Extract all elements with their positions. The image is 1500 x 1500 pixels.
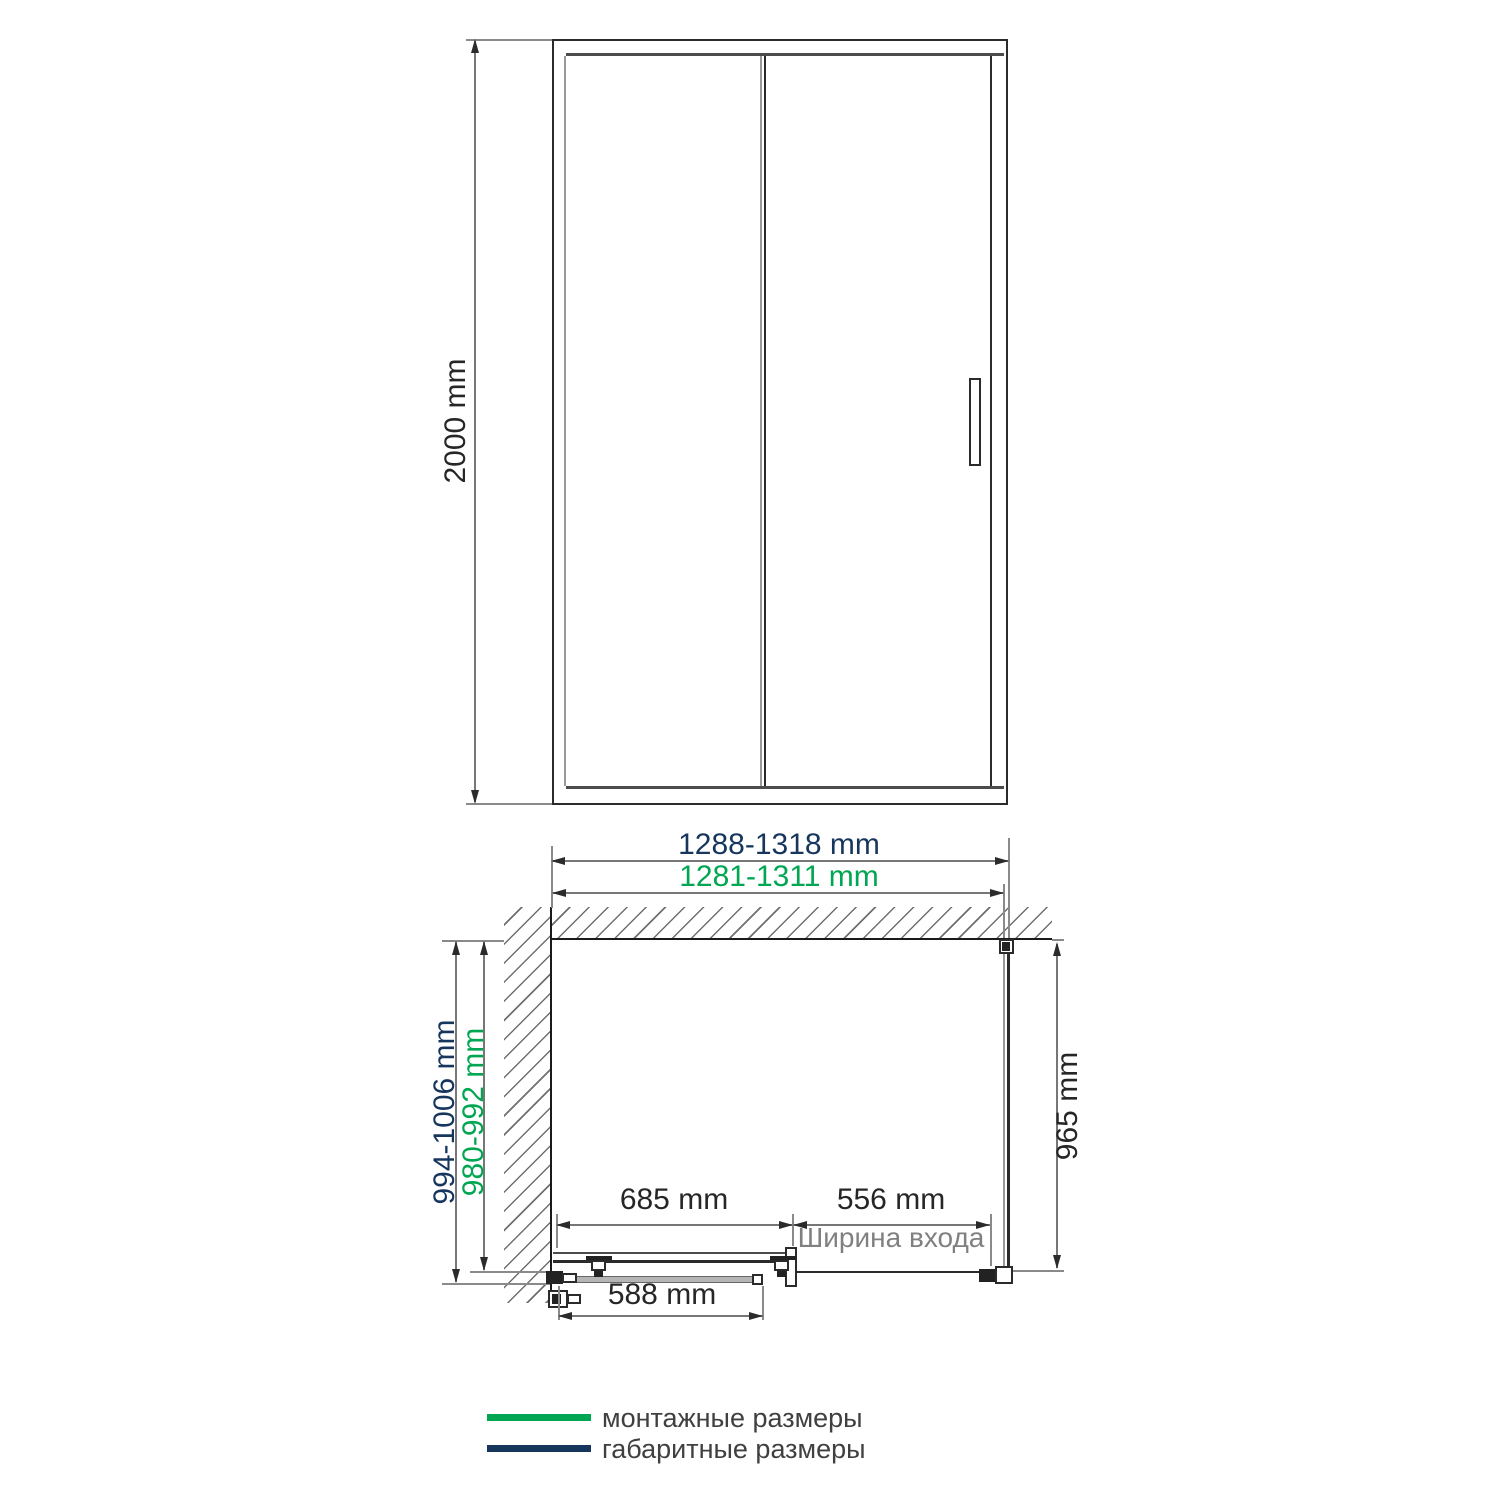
dimension-arrow [471, 790, 479, 804]
door-end-cap [752, 1274, 763, 1285]
legend-mounting-label: монтажные размеры [602, 1405, 863, 1432]
door-handle [969, 378, 981, 466]
extension-line [556, 1214, 558, 1248]
extension-line [1052, 939, 1064, 941]
bottom-rail-line [566, 786, 1004, 789]
side-panel-depth-label: 965 mm [1053, 1052, 1083, 1160]
extension-line [551, 846, 553, 908]
fixed-glass-left-edge [564, 56, 566, 786]
dimension-arrow [779, 1221, 793, 1229]
door-width-label: 588 mm [608, 1280, 716, 1310]
roller-base [777, 1271, 786, 1277]
dimension-arrow [990, 889, 1004, 897]
legend-overall-label: габаритные размеры [602, 1436, 866, 1463]
sliding-door-left-edge [764, 56, 766, 786]
dimension-arrow [558, 1312, 572, 1320]
fixed-panel-line-inner [553, 1252, 791, 1254]
entry-width-caption: Ширина входа [798, 1224, 985, 1252]
dimension-arrow [551, 857, 565, 865]
roller-body [591, 1260, 606, 1271]
dimension-line-door-width [559, 1315, 763, 1317]
extension-line [442, 1283, 550, 1285]
fixed-panel-line-outer [553, 1260, 791, 1263]
dimension-arrow [452, 1269, 460, 1283]
wall-top-hatch [552, 907, 1052, 940]
wall-bracket-arm [562, 1273, 577, 1283]
mounting-width-label: 1281-1311 mm [679, 862, 879, 892]
dimension-arrow [471, 39, 479, 53]
dimension-arrow [995, 857, 1009, 865]
dimension-arrow [749, 1312, 763, 1320]
dimension-arrow [480, 941, 488, 955]
dimension-arrow [480, 1257, 488, 1271]
door-frame [552, 39, 1008, 805]
drawing-canvas: 2000 mm 1288-1318 mm 1281-1311 mm [0, 0, 1500, 1500]
floor-bracket-arm [567, 1294, 581, 1304]
entry-track-line [790, 1271, 1009, 1273]
sliding-door-right-edge [990, 56, 992, 786]
dimension-arrow [1053, 1255, 1061, 1269]
height-dimension-label: 2000 mm [441, 358, 471, 483]
extension-line [792, 1214, 794, 1246]
fixed-glass-right-edge [760, 56, 762, 786]
dimension-arrow [452, 941, 460, 955]
legend-mounting-swatch [487, 1414, 591, 1421]
roller-base [594, 1271, 603, 1277]
overall-width-label: 1288-1318 mm [678, 830, 880, 860]
wall-bracket [546, 1271, 563, 1284]
top-rail-line [566, 53, 1004, 56]
extension-line [1012, 1270, 1064, 1272]
overall-depth-label: 994-1006 mm [430, 1019, 460, 1204]
fixed-panel-width-label: 685 mm [620, 1185, 728, 1215]
dimension-arrow [552, 889, 566, 897]
dimension-arrow [556, 1221, 570, 1229]
dimension-line-fixed-panel [557, 1224, 792, 1226]
floor-bracket-core [552, 1294, 561, 1304]
legend-overall-swatch [487, 1445, 591, 1452]
extension-line [990, 1214, 992, 1266]
side-panel-glass-inner [1003, 940, 1005, 1272]
mounting-depth-label: 980-992 mm [459, 1028, 489, 1196]
corner-bracket [979, 1269, 996, 1282]
wall-left-hatch [504, 907, 552, 1303]
extension-line [470, 1271, 552, 1273]
roller-body [774, 1260, 789, 1271]
corner-bracket-cap [995, 1266, 1013, 1284]
entry-width-label: 556 mm [837, 1185, 945, 1215]
side-panel-glass-outer [1007, 940, 1010, 1272]
side-panel-top-bracket-core [1002, 942, 1010, 951]
dimension-line-height [474, 41, 476, 802]
extension-line [1008, 838, 1010, 938]
dimension-arrow [1053, 942, 1061, 956]
